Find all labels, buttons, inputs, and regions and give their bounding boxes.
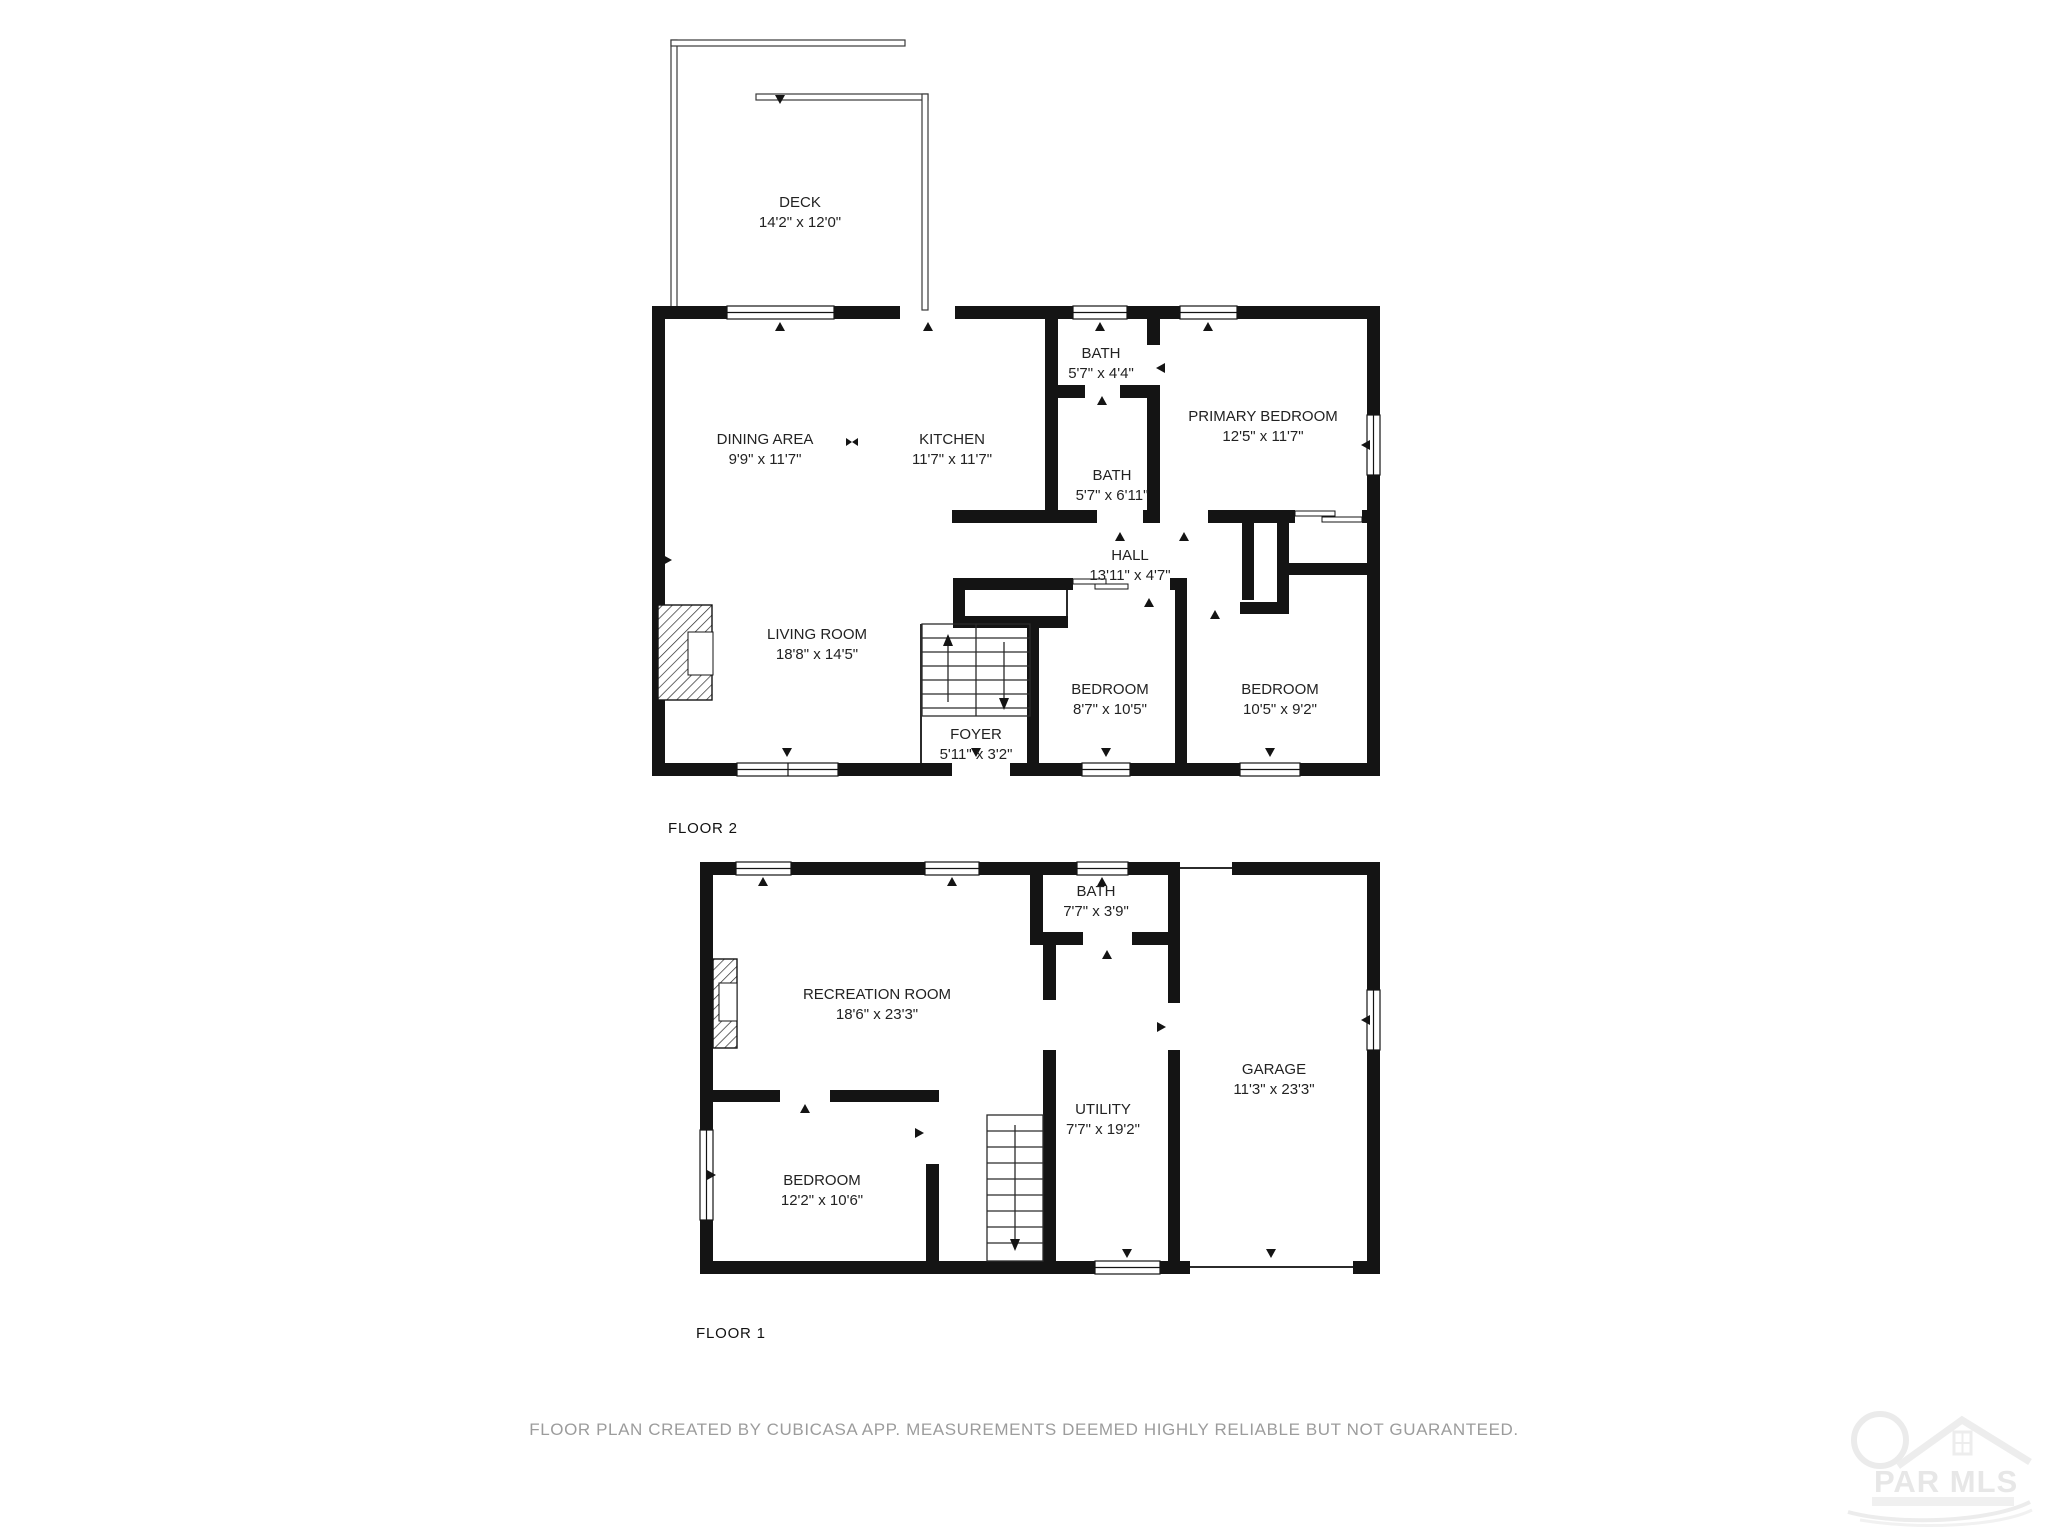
room-label-living-room: LIVING ROOM 18'8" x 14'5" <box>767 625 867 665</box>
watermark-tagline-bar <box>1872 1497 2014 1506</box>
room-label-bath-upper: BATH 5'7" x 4'4" <box>1068 344 1134 384</box>
watermark-text: PAR MLS <box>1874 1464 2018 1499</box>
floorplan-drawing <box>0 0 2048 1536</box>
room-label-bedroom-mid: BEDROOM 8'7" x 10'5" <box>1071 680 1149 720</box>
floor2-tag: FLOOR 2 <box>668 820 738 837</box>
room-label-utility: UTILITY 7'7" x 19'2" <box>1066 1100 1140 1140</box>
floor2-stairs <box>922 624 1030 716</box>
room-label-primary-bedroom: PRIMARY BEDROOM 12'5" x 11'7" <box>1188 407 1337 447</box>
floor-plan-page: { "page": { "background": "#ffffff", "li… <box>0 0 2048 1536</box>
floor2-fireplace <box>658 605 713 700</box>
deck-railing <box>671 40 928 310</box>
room-label-hall: HALL 13'11" x 4'7" <box>1089 546 1170 586</box>
par-mls-watermark-logo: PAR MLS <box>1840 1402 2036 1530</box>
floor1-stairs <box>987 1115 1043 1261</box>
room-label-bedroom-floor1: BEDROOM 12'2" x 10'6" <box>781 1171 863 1211</box>
room-label-foyer: FOYER 5'11" x 3'2" <box>940 725 1013 765</box>
room-label-deck: DECK 14'2" x 12'0" <box>759 193 841 233</box>
footer-disclaimer: FLOOR PLAN CREATED BY CUBICASA APP. MEAS… <box>0 1420 2048 1440</box>
watermark-sun-icon <box>1854 1414 1906 1466</box>
floor1-tag: FLOOR 1 <box>696 1325 766 1342</box>
room-label-dining-area: DINING AREA 9'9" x 11'7" <box>717 430 814 470</box>
floor1-fireplace <box>713 959 737 1048</box>
room-label-bath-floor1: BATH 7'7" x 3'9" <box>1063 882 1129 922</box>
room-label-recreation-room: RECREATION ROOM 18'6" x 23'3" <box>803 985 951 1025</box>
room-label-bath-lower: BATH 5'7" x 6'11" <box>1076 466 1149 506</box>
room-label-garage: GARAGE 11'3" x 23'3" <box>1233 1060 1314 1100</box>
room-label-bedroom-right: BEDROOM 10'5" x 9'2" <box>1241 680 1319 720</box>
room-label-kitchen: KITCHEN 11'7" x 11'7" <box>912 430 992 470</box>
